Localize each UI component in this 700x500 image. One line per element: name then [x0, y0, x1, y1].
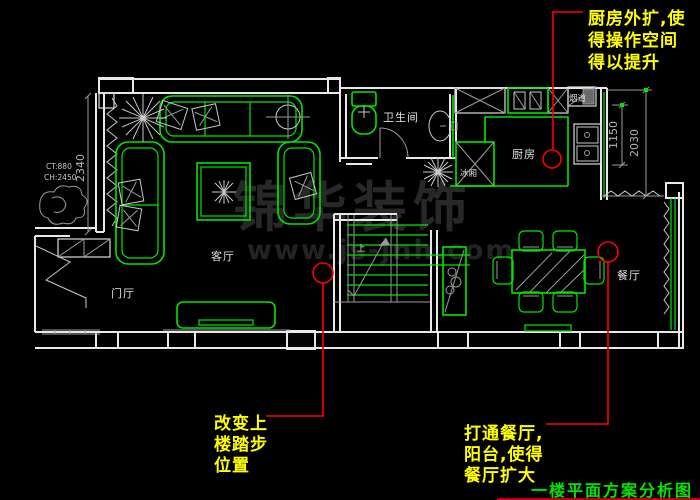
note-dining-line3: 餐厅扩大: [464, 465, 536, 486]
toilet-tank: [352, 92, 376, 106]
kitchen-marker-circle: [543, 150, 561, 168]
stairs-marker-circle: [313, 263, 333, 283]
watermark-url: www.js-jnh.com: [247, 235, 516, 266]
kitchen-sink: [574, 124, 601, 164]
walls: [35, 78, 683, 349]
dimension-2030: 2030: [628, 129, 641, 157]
room-label-bath: 卫生间: [383, 110, 419, 124]
dining-chair: [519, 292, 543, 312]
dining-chair: [584, 257, 604, 284]
note-kitchen: 厨房外扩,使 得操作空间 得以提升: [587, 8, 685, 73]
dining-chair: [553, 292, 577, 312]
ct-label: CT:880: [46, 162, 72, 171]
window-sill: [525, 325, 571, 331]
watermark-brand: 锦华装饰: [233, 176, 473, 239]
note-dining-line1: 打通餐厅,: [464, 423, 543, 444]
note-kitchen-line2: 得操作空间: [587, 30, 678, 51]
label-stairs-up: 上: [357, 244, 366, 254]
note-stairs-line1: 改变上: [214, 413, 268, 434]
note-dining: 打通餐厅, 阳台,使得 餐厅扩大: [464, 423, 543, 486]
dimensions-right: 2030 1150: [607, 87, 652, 199]
dining-marker-circle: [598, 242, 618, 262]
room-label-living: 客厅: [211, 249, 235, 263]
bathroom-door-arc: [380, 128, 408, 158]
label-flue: 烟道: [569, 93, 587, 104]
dimension-left: 2340: [74, 93, 91, 235]
room-label-dining: 餐厅: [617, 268, 641, 282]
balcony-top-glass: [604, 191, 660, 196]
shoe-cabinet: [58, 239, 110, 257]
revision-cloud: [40, 186, 87, 224]
note-stairs-line2: 楼踏步: [214, 434, 268, 455]
dining-chair: [553, 231, 577, 251]
room-label-kitchen: 厨房: [512, 148, 536, 161]
ch-label: CH:2450: [44, 173, 77, 182]
note-stairs: 改变上 楼踏步 位置: [214, 413, 268, 476]
balcony-curtain: [664, 202, 669, 314]
entry-door-wall: [36, 246, 100, 334]
floorplan-page: 锦华装饰 www.js-jnh.com: [0, 0, 700, 500]
note-kitchen-line3: 得以提升: [587, 52, 660, 73]
label-fridge: 冰厢: [460, 168, 478, 179]
tv-stand: [163, 302, 290, 330]
room-label-entry: 门厅: [111, 286, 135, 300]
dining-chair: [519, 231, 543, 251]
note-dining-line2: 阳台,使得: [464, 444, 543, 465]
corner-plant: [119, 94, 167, 142]
note-stairs-line3: 位置: [214, 455, 250, 476]
bathroom-fixtures: [352, 92, 457, 158]
floorplan-canvas: 锦华装饰 www.js-jnh.com: [0, 0, 700, 500]
drawing-title-text: 一楼平面方案分析图: [531, 481, 693, 500]
dimension-1150: 1150: [607, 121, 620, 149]
note-kitchen-line1: 厨房外扩,使: [588, 8, 685, 29]
